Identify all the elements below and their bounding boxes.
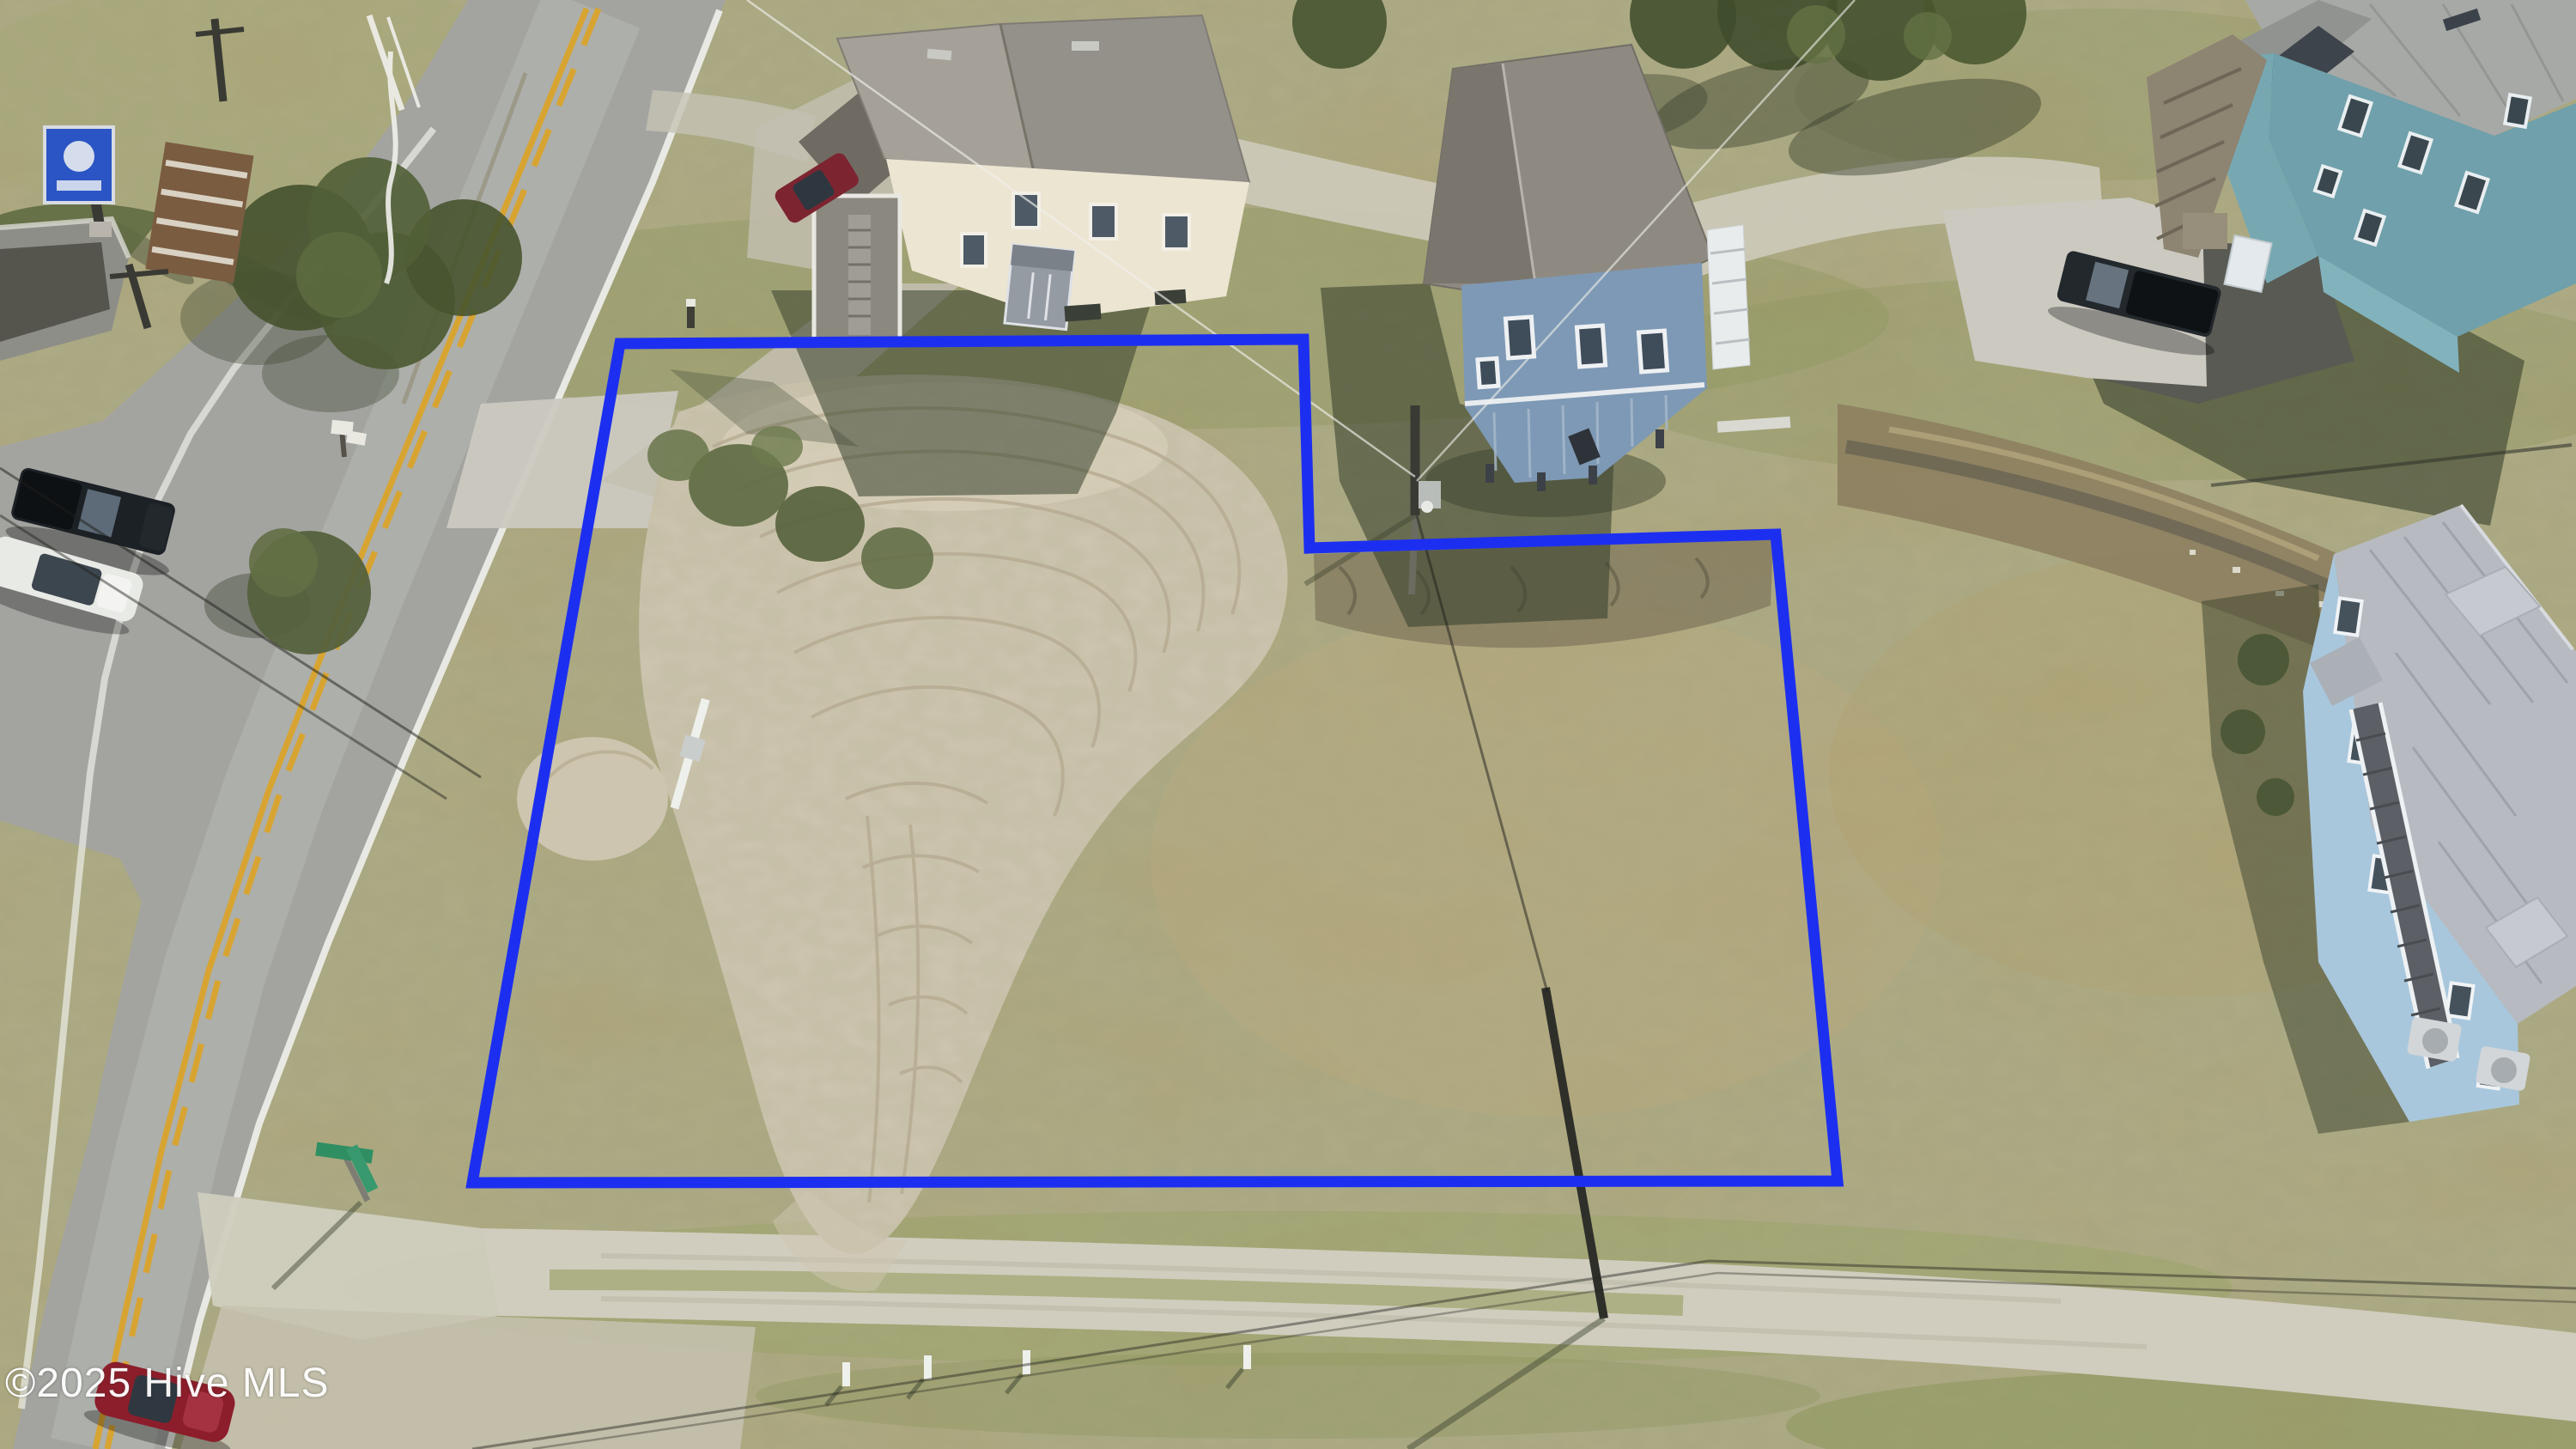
watermark: ©2025 Hive MLS (5, 1360, 330, 1407)
white-house (799, 15, 1249, 342)
lot-corner-marker (686, 299, 696, 328)
aerial-photo-canvas (0, 0, 2576, 1449)
aerial-photo: ©2025 Hive MLS (0, 0, 2576, 1449)
white-house-shed (1005, 245, 1074, 330)
blue-house-deck (1707, 225, 1750, 369)
